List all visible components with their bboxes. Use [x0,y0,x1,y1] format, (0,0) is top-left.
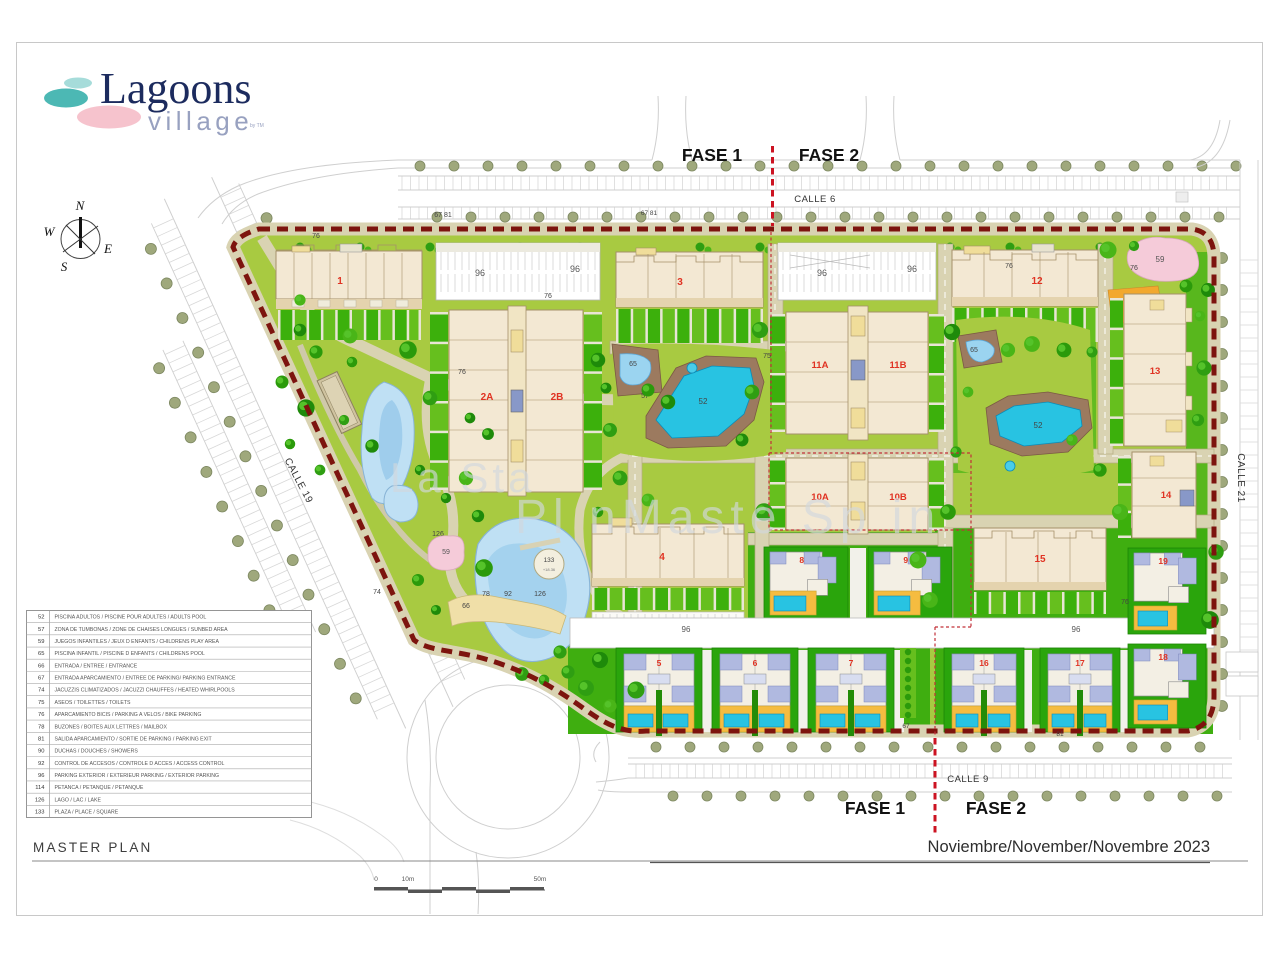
svg-text:74: 74 [38,688,45,694]
svg-text:+18.36: +18.36 [543,567,556,572]
svg-text:66: 66 [462,603,470,610]
svg-text:14: 14 [1161,490,1172,501]
svg-text:by TM: by TM [250,123,264,129]
svg-text:133: 133 [544,557,555,564]
svg-text:76: 76 [312,233,320,240]
svg-text:90: 90 [38,749,44,755]
svg-text:La Sta: La Sta [390,454,535,501]
svg-text:10m: 10m [402,876,415,883]
svg-text:3: 3 [677,277,683,288]
svg-text:65: 65 [970,347,978,354]
svg-text:PISCINA INFANTIL / PISCINE D E: PISCINA INFANTIL / PISCINE D ENFANTS / C… [55,651,205,657]
svg-text:81: 81 [1056,731,1064,738]
svg-text:67: 67 [38,676,44,682]
svg-text:DUCHAS / DOUCHES / SHOWERS: DUCHAS / DOUCHES / SHOWERS [55,749,139,755]
svg-text:96: 96 [475,268,485,278]
svg-text:CALLE 21: CALLE 21 [1235,453,1246,503]
svg-text:S: S [61,259,68,274]
svg-text:Noviembre/November/Novembre 20: Noviembre/November/Novembre 2023 [928,838,1210,856]
svg-text:SALIDA APARCAMIENTO / SORTIE D: SALIDA APARCAMIENTO / SORTIE DE PARKING … [55,736,213,742]
svg-text:N: N [75,198,86,213]
svg-text:67 81: 67 81 [434,212,452,219]
svg-text:67: 67 [902,723,910,730]
svg-text:BUZONES / BOITES AUX LETTRES /: BUZONES / BOITES AUX LETTRES / MAILBOX [55,724,168,730]
svg-text:2A: 2A [481,392,494,403]
svg-text:village: village [148,106,253,136]
svg-text:76: 76 [1130,265,1138,272]
svg-text:96: 96 [907,264,917,274]
svg-text:ZONA DE TUMBONAS / ZONE DE CHA: ZONA DE TUMBONAS / ZONE DE CHAISES LONGU… [55,627,229,633]
svg-text:67 81: 67 81 [641,210,658,217]
svg-text:6: 6 [753,658,758,668]
svg-text:57: 57 [38,627,44,633]
svg-text:JACUZZIS CLIMATIZADOS / JACUZZ: JACUZZIS CLIMATIZADOS / JACUZZI CHAUFFES… [55,688,236,694]
svg-text:59: 59 [442,549,450,556]
svg-text:0: 0 [374,876,378,883]
svg-text:13: 13 [1150,366,1161,377]
svg-text:96: 96 [1072,625,1081,634]
svg-text:Pl nMaste Sp in: Pl nMaste Sp in [515,491,941,544]
svg-text:133: 133 [35,810,45,816]
svg-text:50m: 50m [534,876,547,883]
svg-text:ENTRADA APARCAMIENTO / ENTREE: ENTRADA APARCAMIENTO / ENTREE DE PARKING… [55,676,236,682]
svg-text:CALLE 9: CALLE 9 [947,774,989,785]
svg-text:7: 7 [849,658,854,668]
svg-text:65: 65 [38,651,44,657]
svg-text:52: 52 [38,615,44,621]
svg-text:2B: 2B [551,392,564,403]
svg-text:16: 16 [979,658,989,668]
svg-text:PARKING EXTERIOR / EXTERIEUR P: PARKING EXTERIOR / EXTERIEUR PARKING / E… [55,773,220,779]
svg-text:59: 59 [38,639,44,645]
svg-text:96: 96 [817,268,827,278]
svg-text:MASTER PLAN: MASTER PLAN [33,840,152,855]
svg-text:17: 17 [1075,658,1085,668]
svg-text:52: 52 [699,397,708,406]
svg-text:E: E [103,241,112,256]
svg-text:FASE 2: FASE 2 [799,145,860,165]
svg-text:92: 92 [504,591,512,598]
svg-text:66: 66 [38,663,44,669]
svg-text:1: 1 [337,276,343,287]
svg-text:4: 4 [659,552,665,563]
svg-text:12: 12 [1031,276,1043,287]
svg-text:11A: 11A [812,360,829,371]
svg-text:9: 9 [903,555,908,565]
svg-text:PETANCA / PETANQUE / PETANQUE: PETANCA / PETANQUE / PETANQUE [55,785,144,791]
svg-text:FASE 1: FASE 1 [845,798,906,818]
svg-text:76: 76 [458,369,466,376]
svg-text:W: W [44,224,56,239]
svg-text:PLAZA / PLACE / SQUARE: PLAZA / PLACE / SQUARE [55,810,119,816]
svg-text:PISCINA ADULTOS / PISCINE POU: PISCINA ADULTOS / PISCINE POUR ADULTES /… [55,615,207,621]
svg-text:76: 76 [38,712,44,718]
svg-text:11B: 11B [890,360,907,371]
svg-text:96: 96 [570,264,580,274]
svg-text:126: 126 [35,797,45,803]
svg-text:ENTRADA / ENTREE / ENTRANCE: ENTRADA / ENTREE / ENTRANCE [55,663,138,669]
svg-text:78: 78 [482,591,490,598]
svg-text:74: 74 [373,589,381,596]
svg-text:19: 19 [1158,556,1168,566]
svg-text:JUEGOS INFANTILES / JEUX D ENF: JUEGOS INFANTILES / JEUX D ENFANTS / CHI… [55,639,220,645]
svg-text:52: 52 [1034,421,1043,430]
svg-text:CONTROL DE ACCESOS / CONTROLE: CONTROL DE ACCESOS / CONTROLE D ACCES / … [55,761,225,767]
svg-text:ASEOS / TOILETTES / TOILETS: ASEOS / TOILETTES / TOILETS [55,700,132,706]
svg-text:76: 76 [1005,263,1013,270]
svg-text:81: 81 [38,736,44,742]
svg-text:APARCAMIENTO BICIS / PARKING A: APARCAMIENTO BICIS / PARKING A VELOS / B… [55,712,202,718]
svg-text:75: 75 [38,700,44,706]
svg-text:75: 75 [763,353,771,360]
svg-text:15: 15 [1034,554,1046,565]
svg-text:5: 5 [657,658,662,668]
svg-text:65: 65 [629,361,637,368]
svg-text:CALLE 6: CALLE 6 [794,194,836,205]
svg-text:114: 114 [35,785,45,791]
svg-text:76: 76 [544,293,552,300]
svg-text:18: 18 [1158,652,1168,662]
svg-text:59: 59 [1156,255,1165,264]
svg-text:FASE 1: FASE 1 [682,145,743,165]
svg-text:92: 92 [38,761,44,767]
svg-text:LAGO / LAC / LAKE: LAGO / LAC / LAKE [55,797,102,803]
svg-text:78: 78 [38,724,44,730]
svg-text:8: 8 [799,555,804,565]
svg-text:96: 96 [38,773,44,779]
svg-text:126: 126 [534,591,546,598]
svg-text:76: 76 [1121,599,1129,606]
svg-text:FASE 2: FASE 2 [966,798,1027,818]
svg-text:96: 96 [682,625,691,634]
